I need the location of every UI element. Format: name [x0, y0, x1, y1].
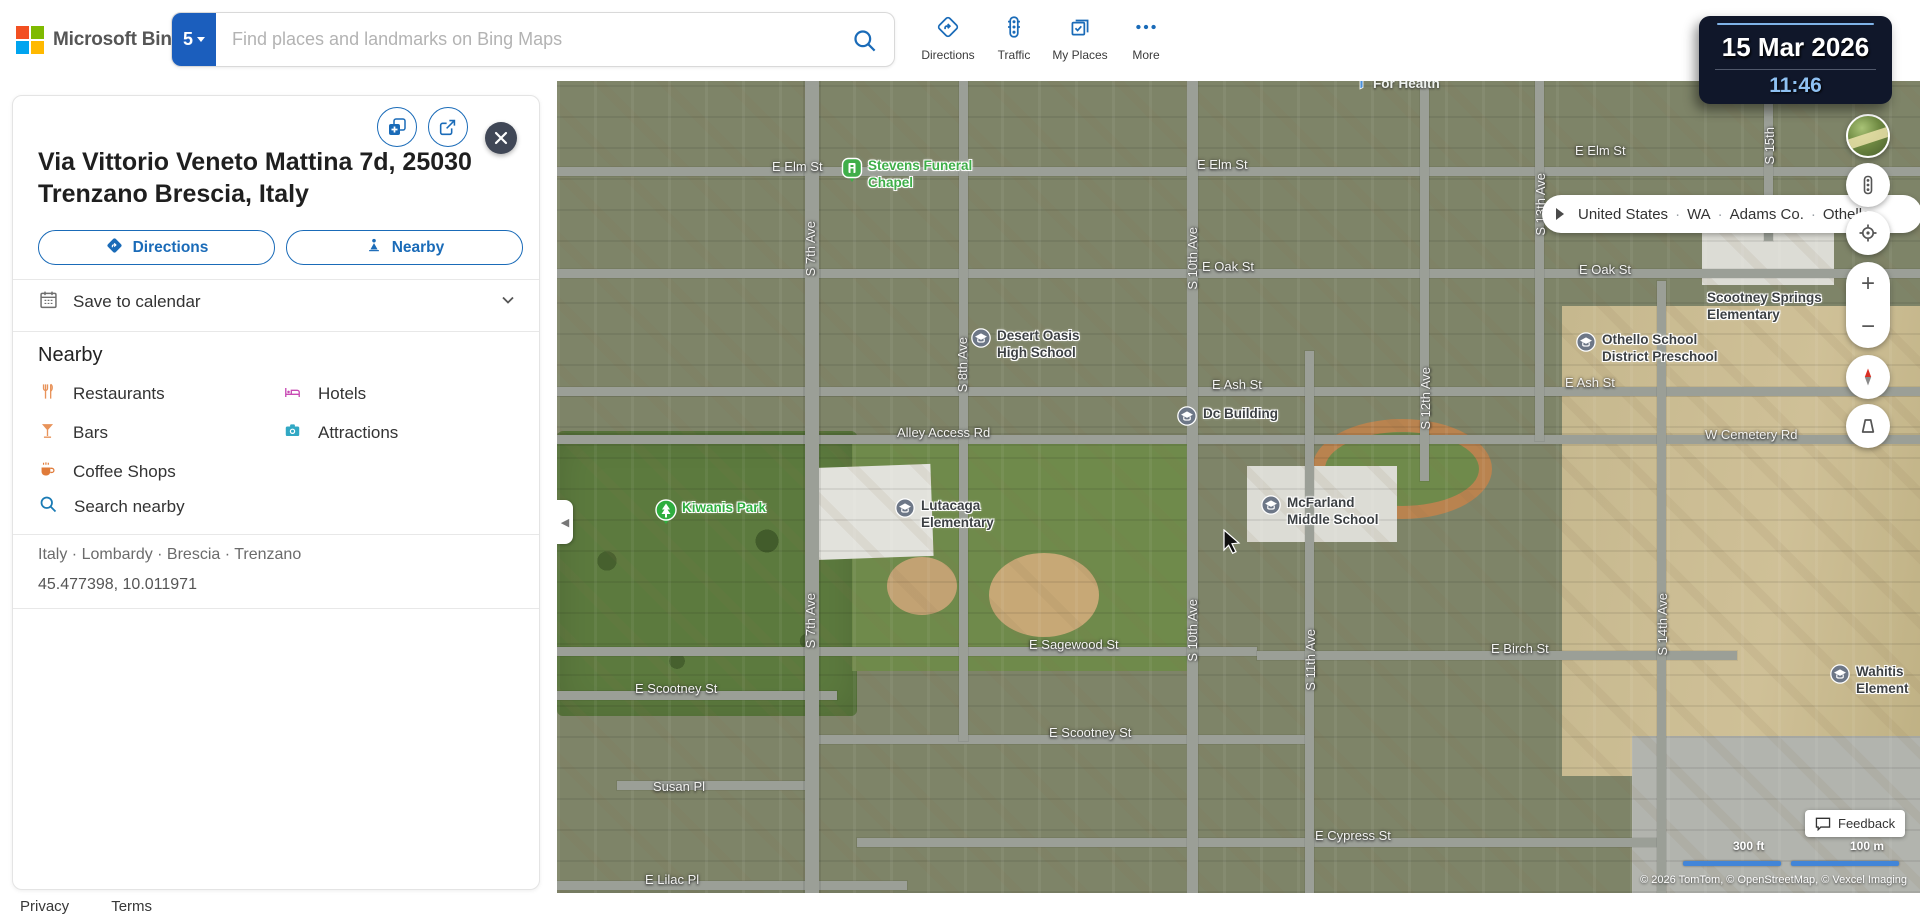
locate-me-button[interactable] — [1846, 211, 1890, 255]
street-label: E Cypress St — [1315, 828, 1391, 843]
category-restaurants[interactable]: Restaurants — [38, 382, 165, 406]
category-label: Bars — [73, 423, 108, 443]
street-label: W Cemetery Rd — [1705, 427, 1797, 442]
zoom-capsule: + − — [1846, 262, 1890, 348]
poi-label-text: Stevens FuneralChapel — [868, 157, 972, 191]
divider — [13, 331, 539, 332]
privacy-link[interactable]: Privacy — [20, 898, 69, 915]
search-input[interactable] — [216, 13, 894, 66]
streetside-perspective-button[interactable] — [1846, 404, 1890, 448]
search-nearby-row[interactable]: Search nearby — [38, 494, 185, 519]
microsoft-logo-icon — [16, 26, 44, 54]
map-poi-label[interactable]: Stevens FuneralChapel — [841, 157, 972, 191]
nav-label: Directions — [921, 48, 974, 62]
street-label: E Scootney St — [635, 681, 717, 696]
poi-label-text: Scootney SpringsElementary — [1707, 289, 1822, 323]
category-label: Restaurants — [73, 384, 165, 404]
poi-label-text: For Health — [1373, 81, 1440, 92]
date-time-widget: 15 Mar 2026 11:46 — [1699, 16, 1892, 104]
save-to-calendar-row[interactable]: Save to calendar — [38, 285, 516, 319]
scale-meters-bar — [1791, 861, 1899, 866]
action-buttons-row: Directions Nearby — [38, 230, 523, 265]
place-poi-icon — [841, 157, 863, 188]
traffic-icon — [1001, 14, 1027, 45]
save-to-calendar-label: Save to calendar — [73, 292, 500, 312]
map-type-button[interactable] — [1846, 114, 1890, 158]
location-title: Via Vittorio Veneto Mattina 7d, 25030 Tr… — [38, 146, 530, 210]
poi-label-text: LutacagaElementary — [921, 497, 994, 531]
time-display: 11:46 — [1699, 74, 1892, 98]
category-attractions[interactable]: Attractions — [283, 421, 398, 445]
street-label: E Elm St — [1197, 157, 1248, 172]
map-poi-label[interactable]: For Health — [1355, 81, 1440, 95]
nav-traffic[interactable]: Traffic — [981, 10, 1047, 62]
poi-label-text: McFarlandMiddle School — [1287, 494, 1379, 528]
school-poi-icon — [1829, 663, 1851, 690]
calendar-icon — [38, 289, 59, 315]
street-label: S 7th Ave — [803, 221, 818, 276]
street-label: S 7th Ave — [803, 593, 818, 648]
location-panel: Via Vittorio Veneto Mattina 7d, 25030 Tr… — [12, 95, 540, 890]
breadcrumb-state[interactable]: WA — [1687, 206, 1711, 223]
category-label: Coffee Shops — [73, 462, 176, 482]
nearby-pin-icon — [365, 236, 383, 259]
map-poi-label[interactable]: McFarlandMiddle School — [1260, 494, 1379, 528]
map-canvas[interactable]: E Elm StE Elm StE Elm StE Oak StE Oak St… — [557, 81, 1920, 893]
school-poi-icon — [970, 327, 992, 354]
poi-label-text: Kiwanis Park — [682, 499, 766, 516]
map-poi-label[interactable]: Othello SchoolDistrict Preschool — [1575, 331, 1718, 365]
poi-label-text: Dc Building — [1203, 405, 1278, 422]
map-poi-label[interactable]: Dc Building — [1176, 405, 1278, 432]
terms-link[interactable]: Terms — [111, 898, 152, 915]
poi-label-text: Desert OasisHigh School — [997, 327, 1080, 361]
coffee-icon — [38, 460, 57, 484]
date-display: 15 Mar 2026 — [1699, 32, 1892, 63]
more-ellipsis-icon — [1133, 14, 1159, 45]
bing-logo[interactable]: Microsoft Bing — [16, 26, 183, 54]
street-label: E Sagewood St — [1029, 637, 1119, 652]
map-poi-label[interactable]: Desert OasisHigh School — [970, 327, 1080, 361]
zoom-out-button[interactable]: − — [1846, 305, 1890, 348]
search-history-dropdown[interactable]: 5 — [172, 13, 216, 66]
attractions-icon — [283, 421, 302, 445]
top-bar: Microsoft Bing 5 Directions — [0, 0, 1920, 81]
nav-label: Traffic — [998, 48, 1031, 62]
search-bar: 5 — [171, 12, 895, 67]
street-label: Alley Access Rd — [897, 425, 990, 440]
bars-icon — [38, 421, 57, 445]
clock-divider — [1715, 69, 1876, 70]
coordinates: 45.477398, 10.011971 — [38, 576, 197, 594]
street-label: E Scootney St — [1049, 725, 1131, 740]
traffic-toggle-button[interactable] — [1846, 163, 1890, 207]
map-poi-label[interactable]: LutacagaElementary — [894, 497, 994, 531]
share-button[interactable] — [428, 107, 468, 147]
school-poi-icon — [1260, 494, 1282, 521]
restaurants-icon — [38, 382, 57, 406]
street-label: E Oak St — [1579, 262, 1631, 277]
poi-label-text: Othello SchoolDistrict Preschool — [1602, 331, 1718, 365]
street-label: S 10th Ave — [1185, 599, 1200, 662]
directions-button-label: Directions — [133, 239, 209, 257]
map-copyright: © 2026 TomTom, © OpenStreetMap, © Vexcel… — [1507, 874, 1907, 886]
save-place-button[interactable] — [377, 107, 417, 147]
map-poi-label[interactable]: WahitisElement — [1829, 663, 1909, 697]
search-count-badge: 5 — [183, 29, 193, 50]
logo-text: Microsoft Bing — [53, 29, 183, 51]
breadcrumb-country[interactable]: United States — [1578, 206, 1668, 223]
my-places-icon — [1067, 14, 1093, 45]
hotels-icon — [283, 382, 302, 406]
region-breadcrumb: Italy · Lombardy · Brescia · Trenzano — [38, 546, 301, 564]
breadcrumb-county[interactable]: Adams Co. — [1730, 206, 1804, 223]
health-poi-icon — [1355, 81, 1368, 95]
feedback-bubble-icon — [1815, 817, 1831, 831]
feedback-button[interactable]: Feedback — [1805, 810, 1905, 837]
footer-links: Privacy Terms — [20, 898, 152, 915]
street-label: S 14th Ave — [1655, 593, 1670, 656]
scale-meters-label: 100 m — [1850, 839, 1884, 853]
street-label: Susan Pl — [653, 779, 705, 794]
street-label: E Elm St — [1575, 143, 1626, 158]
school-poi-icon — [1575, 331, 1597, 358]
search-nearby-label: Search nearby — [74, 497, 185, 517]
school-poi-icon — [894, 497, 916, 524]
nav-my-places[interactable]: My Places — [1047, 10, 1113, 62]
nearby-button-label: Nearby — [392, 239, 445, 257]
street-label: S 11th Ave — [1303, 629, 1318, 691]
search-icon[interactable] — [851, 27, 878, 59]
divider — [13, 534, 539, 535]
category-label: Hotels — [318, 384, 366, 404]
street-label: S 15th — [1762, 127, 1777, 165]
scale-feet-label: 300 ft — [1733, 839, 1764, 853]
street-label: E Ash St — [1565, 375, 1615, 390]
poi-label-text: WahitisElement — [1856, 663, 1909, 697]
chevron-down-icon — [197, 37, 205, 42]
zoom-in-button[interactable]: + — [1846, 262, 1890, 305]
street-label: S 10th Ave — [1185, 227, 1200, 290]
map-poi-label[interactable]: Scootney SpringsElementary — [1707, 289, 1822, 323]
street-label: S 12th Ave — [1418, 367, 1433, 430]
divider — [13, 608, 539, 609]
park-poi-icon — [655, 499, 677, 530]
nav-more[interactable]: More — [1113, 10, 1179, 62]
breadcrumb-separator: · — [1811, 206, 1816, 223]
category-label: Attractions — [318, 423, 398, 443]
map-poi-label[interactable]: Kiwanis Park — [655, 499, 766, 530]
breadcrumb-separator: · — [1675, 206, 1680, 223]
chevron-down-icon — [500, 292, 516, 313]
panel-collapse-tab[interactable]: ◀ — [557, 500, 573, 544]
school-poi-icon — [1176, 405, 1198, 432]
street-label: S 8th Ave — [955, 337, 970, 392]
nav-directions[interactable]: Directions — [915, 10, 981, 62]
scale-feet-bar — [1683, 861, 1781, 866]
directions-diamond-icon — [105, 236, 124, 260]
nav-label: My Places — [1052, 48, 1107, 62]
mouse-cursor — [1222, 529, 1243, 560]
street-label: E Ash St — [1212, 377, 1262, 392]
nav-label: More — [1132, 48, 1159, 62]
category-hotels[interactable]: Hotels — [283, 382, 366, 406]
feedback-label: Feedback — [1838, 816, 1895, 831]
street-label: E Lilac Pl — [645, 872, 699, 887]
top-navigation: Directions Traffic — [915, 10, 1179, 62]
street-label: E Elm St — [772, 159, 823, 174]
nearby-section-heading: Nearby — [38, 344, 102, 367]
divider — [13, 279, 539, 280]
street-label: E Birch St — [1491, 641, 1549, 656]
compass-button[interactable] — [1846, 355, 1890, 399]
breadcrumb-expand-icon[interactable] — [1556, 208, 1564, 220]
category-coffee-shops[interactable]: Coffee Shops — [38, 460, 176, 484]
breadcrumb-separator: · — [1718, 206, 1723, 223]
search-nearby-icon — [38, 494, 58, 519]
nearby-button[interactable]: Nearby — [286, 230, 523, 265]
directions-button[interactable]: Directions — [38, 230, 275, 265]
street-label: E Oak St — [1202, 259, 1254, 274]
category-bars[interactable]: Bars — [38, 421, 108, 445]
directions-icon — [935, 14, 961, 45]
